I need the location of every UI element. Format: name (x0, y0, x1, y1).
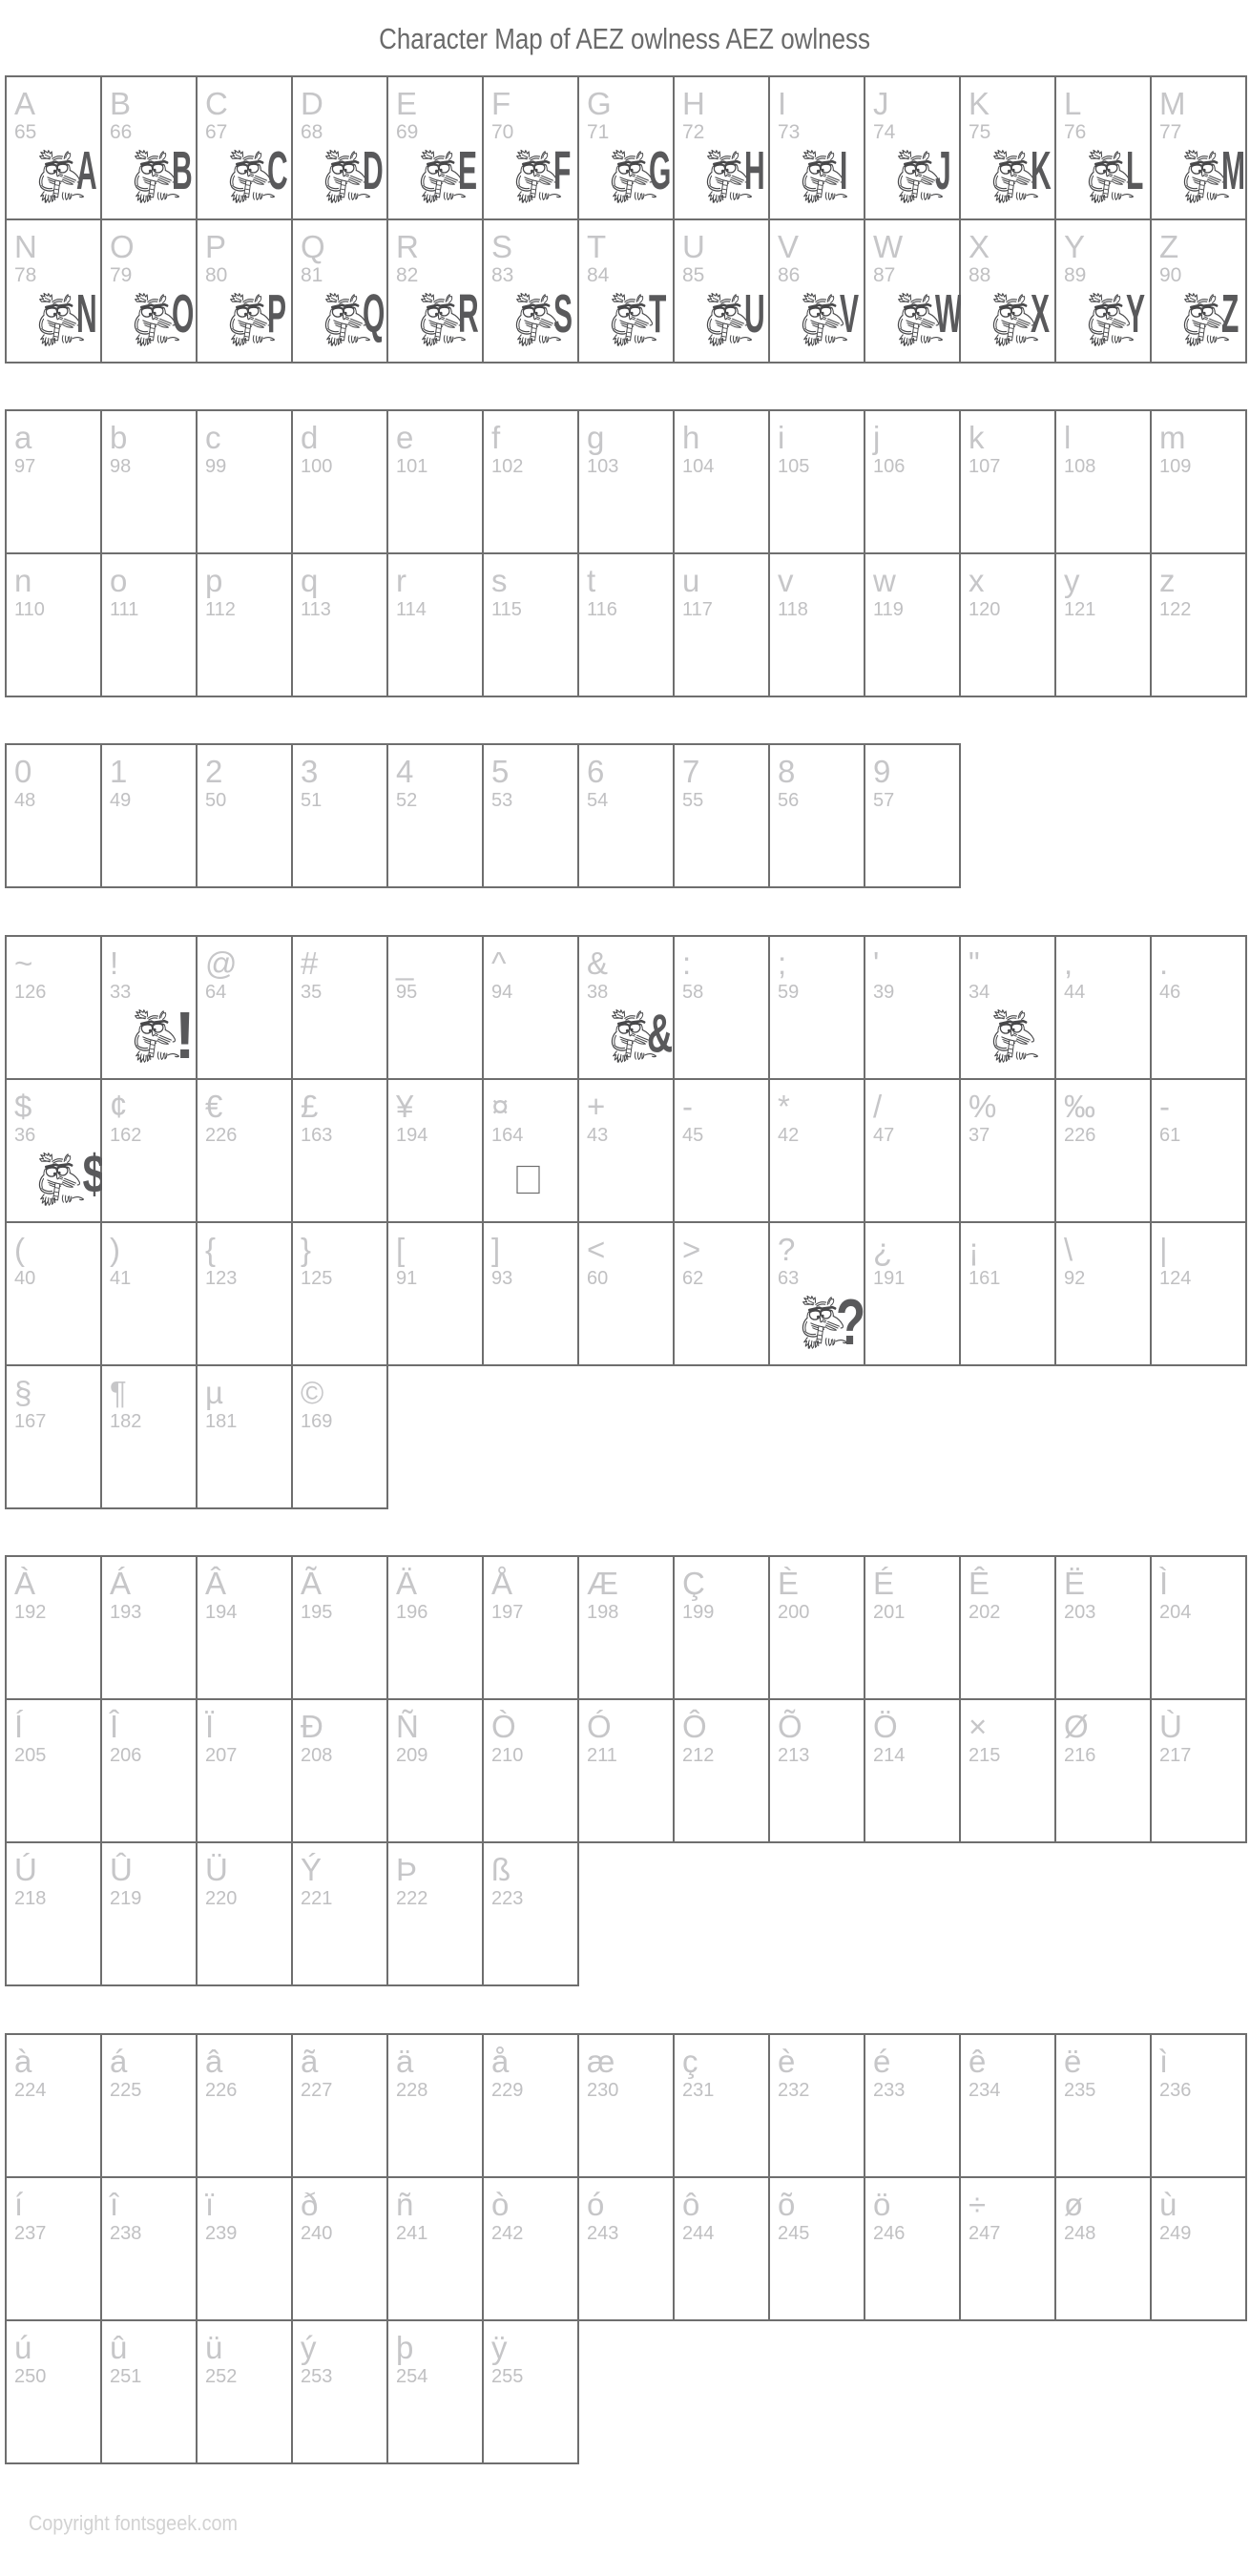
svg-text:G: G (649, 140, 671, 201)
svg-text:L: L (1126, 140, 1143, 201)
svg-text:K: K (1031, 140, 1052, 201)
svg-text:Y: Y (1126, 283, 1145, 344)
svg-text:N: N (76, 283, 97, 344)
svg-text:M: M (1221, 140, 1245, 201)
svg-text:E: E (458, 140, 477, 201)
svg-text:F: F (553, 140, 571, 201)
svg-text:A: A (76, 140, 97, 201)
svg-text:C: C (267, 140, 288, 201)
svg-text:J: J (935, 140, 951, 201)
svg-text:B: B (172, 140, 193, 201)
svg-text:Z: Z (1221, 283, 1239, 344)
svg-text:!: ! (175, 999, 195, 1073)
svg-text:S: S (553, 283, 573, 344)
svg-text:O: O (172, 283, 194, 344)
svg-text:X: X (1031, 283, 1050, 344)
svg-text:Q: Q (363, 283, 385, 344)
svg-text:&: & (647, 1004, 673, 1065)
svg-text:W: W (935, 283, 962, 344)
svg-text:?: ? (836, 1286, 865, 1359)
svg-text:R: R (458, 283, 479, 344)
svg-text:D: D (363, 140, 384, 201)
svg-text:H: H (744, 140, 765, 201)
svg-text:T: T (649, 283, 666, 344)
svg-text:P: P (267, 283, 286, 344)
svg-text:U: U (744, 283, 765, 344)
svg-text:V: V (840, 283, 859, 344)
svg-text:I: I (840, 140, 847, 201)
